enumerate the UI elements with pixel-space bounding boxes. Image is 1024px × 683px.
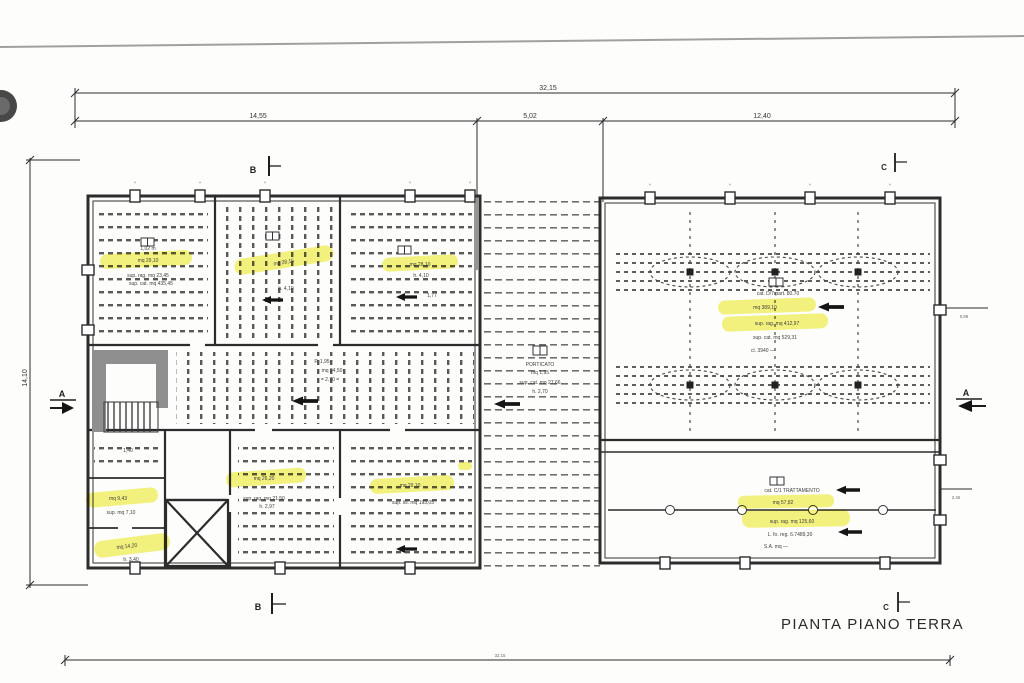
section-marker-c-bottom: C: [883, 592, 910, 612]
svg-text:sup. rag. mq 125,60: sup. rag. mq 125,60: [770, 519, 815, 525]
dimension-label-right-span: 12,40: [753, 113, 771, 120]
tick-plus-labels: ++ ++ ++ ++ +: [134, 180, 892, 187]
svg-text:h. 2,70: h. 2,70: [532, 389, 548, 395]
svg-text:mq 26,20: mq 26,20: [254, 476, 275, 482]
svg-text:A: A: [59, 389, 66, 399]
svg-text:1,02 m: 1,02 m: [140, 246, 155, 252]
dimension-label-overall-top: 32,15: [539, 85, 557, 92]
svg-text:mq 24,50: mq 24,50: [322, 368, 343, 374]
section-marker-b-bottom: B: [255, 593, 286, 614]
svg-text:mq 389,10: mq 389,10: [753, 305, 777, 311]
svg-text:h. 2,97: h. 2,97: [259, 504, 275, 510]
dimension-label-left-height: 14,10: [22, 369, 29, 387]
highlight-dot: [458, 462, 472, 470]
svg-text:+: +: [729, 182, 732, 187]
room-id-icon: [769, 278, 783, 286]
stamp-icon: [0, 90, 17, 122]
svg-text:+: +: [199, 180, 202, 185]
section-marker-a-left: A: [50, 389, 76, 414]
svg-text:1,77: 1,77: [427, 293, 437, 299]
svg-text:mq 28,10: mq 28,10: [410, 262, 431, 268]
leader-arrow-icon: [818, 303, 844, 312]
svg-text:sup. rag. mq 412,97: sup. rag. mq 412,97: [755, 321, 800, 327]
leader-arrow-icon: [838, 528, 862, 536]
room-id-icon: [398, 246, 411, 254]
svg-text:sup. cat. mq 435,45: sup. cat. mq 435,45: [129, 281, 173, 287]
elevator-shaft-x: [166, 500, 228, 566]
section-marker-c-top: C: [881, 153, 907, 172]
svg-text:PORTICATO: PORTICATO: [526, 362, 555, 368]
dimension-label-left-span: 14,55: [249, 113, 267, 120]
section-marker-b-top: B: [250, 156, 281, 176]
svg-text:C: C: [881, 163, 887, 172]
svg-text:+: +: [409, 180, 412, 185]
leader-arrow-icon: [836, 486, 860, 494]
svg-text:cl. 3940 —: cl. 3940 —: [751, 348, 775, 354]
svg-text:h. 4,10: h. 4,10: [278, 286, 294, 292]
svg-text:1,40: 1,40: [123, 448, 133, 454]
section-marker-a-right: A: [956, 388, 986, 412]
room-id-icon: [266, 232, 279, 240]
svg-text:sup. rag. mq 21,50: sup. rag. mq 21,50: [243, 496, 285, 502]
svg-text:+: +: [889, 182, 892, 187]
dimension-label-overall-bottom: 32,15: [495, 653, 506, 658]
svg-text:mq 1,95: mq 1,95: [531, 370, 549, 376]
scanned-sheet: 32,15 14,55 5,02 12,40 14,10 32,15 0,98 …: [0, 0, 1024, 683]
room-id-icon: [770, 477, 784, 485]
svg-text:P. 1,95: P. 1,95: [314, 359, 329, 365]
svg-text:+: +: [809, 182, 812, 187]
svg-text:h. 4,10: h. 4,10: [413, 273, 429, 279]
svg-text:+: +: [469, 180, 472, 185]
svg-text:sup. lis. mq 193,05: sup. lis. mq 193,05: [392, 500, 434, 506]
svg-text:A: A: [963, 388, 970, 398]
room-id-icon: [533, 346, 547, 355]
svg-text:h. 3,40: h. 3,40: [123, 557, 139, 563]
svg-text:C: C: [883, 603, 889, 612]
svg-text:mq 29,10: mq 29,10: [400, 483, 421, 489]
svg-text:sup. rag. mq 23,45: sup. rag. mq 23,45: [127, 273, 169, 279]
staircase: [92, 350, 168, 432]
svg-text:mq 9,43: mq 9,43: [109, 496, 127, 502]
svg-text:+: +: [134, 180, 137, 185]
svg-text:+: +: [649, 182, 652, 187]
svg-text:cat. D/7 part. 80.70: cat. D/7 part. 80.70: [757, 291, 800, 297]
dimension-label-mid-span: 5,02: [523, 113, 537, 120]
svg-text:cat. C/1 TRATTAMENTO: cat. C/1 TRATTAMENTO: [764, 488, 819, 494]
scan-edge-line: [0, 36, 1024, 47]
svg-text:L. fo. reg. 6.7489,30: L. fo. reg. 6.7489,30: [768, 532, 813, 538]
svg-text:B: B: [250, 165, 257, 175]
svg-text:+: +: [264, 180, 267, 185]
svg-text:sup. mq 7,10: sup. mq 7,10: [107, 510, 136, 516]
floor-plan-drawing: 32,15 14,55 5,02 12,40 14,10 32,15 0,98 …: [0, 0, 1024, 683]
svg-text:mq 57,82: mq 57,82: [773, 500, 794, 506]
dimension-label-right-lower: 2,45: [952, 495, 961, 500]
svg-text:sup. cat. mq 529,31: sup. cat. mq 529,31: [753, 335, 797, 341]
svg-text:S.A. mq —: S.A. mq —: [764, 544, 788, 550]
svg-text:mq 29,10: mq 29,10: [138, 258, 159, 264]
svg-text:B: B: [255, 602, 262, 612]
svg-text:= 2,70 =: = 2,70 =: [321, 377, 339, 383]
svg-text:sup. cat. mq 27,66: sup. cat. mq 27,66: [519, 380, 560, 386]
dimension-label-right-upper: 0,98: [960, 314, 969, 319]
room-id-icon: [141, 238, 154, 246]
drawing-title: PIANTA PIANO TERRA: [781, 616, 964, 633]
